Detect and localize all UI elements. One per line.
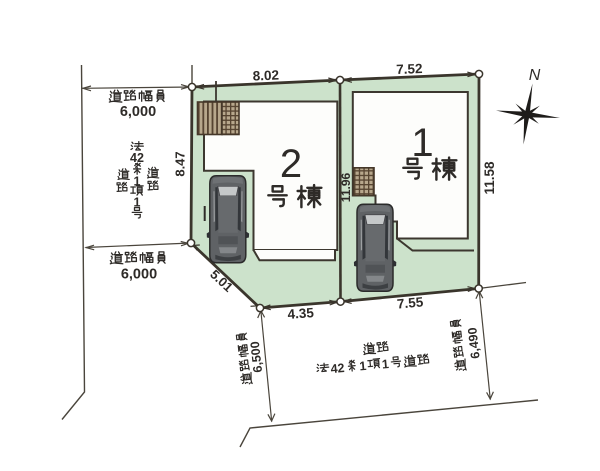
svg-text:8.47: 8.47 xyxy=(173,151,188,176)
svg-text:N: N xyxy=(529,67,541,84)
svg-text:11.58: 11.58 xyxy=(482,161,497,195)
svg-text:2: 2 xyxy=(280,142,302,186)
svg-text:6,000: 6,000 xyxy=(121,267,157,283)
svg-text:4.35: 4.35 xyxy=(287,305,315,322)
svg-text:42: 42 xyxy=(330,361,345,376)
svg-text:1: 1 xyxy=(359,359,367,374)
svg-text:11.96: 11.96 xyxy=(339,172,353,202)
svg-text:6,000: 6,000 xyxy=(120,104,156,120)
svg-text:7.55: 7.55 xyxy=(396,294,424,311)
svg-text:7.52: 7.52 xyxy=(396,61,423,77)
svg-text:1: 1 xyxy=(381,357,389,372)
svg-text:8.02: 8.02 xyxy=(252,68,279,84)
